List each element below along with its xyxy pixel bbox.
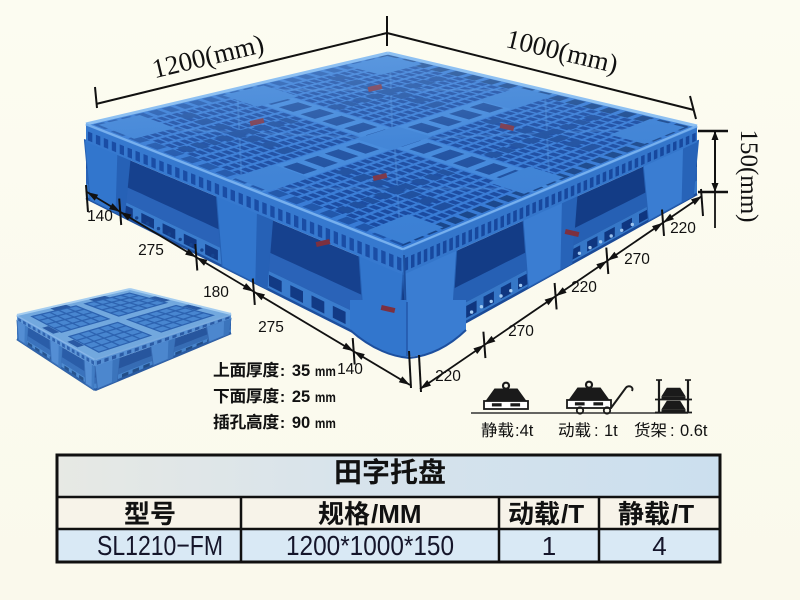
svg-text:220: 220 [670,220,696,237]
svg-text:/T: /T [561,499,584,529]
svg-text:150(mm): 150(mm) [735,129,762,222]
svg-text:275: 275 [258,319,284,336]
svg-text:0.6t: 0.6t [680,422,708,440]
svg-text:1000(mm): 1000(mm) [503,23,621,79]
svg-text:4: 4 [652,531,666,561]
svg-text:/MM: /MM [371,499,422,529]
svg-text:25: 25 [292,388,310,406]
svg-text:275: 275 [138,242,164,259]
svg-text:1: 1 [542,531,556,561]
svg-text::: : [280,415,285,432]
svg-text::4t: :4t [515,422,534,440]
svg-text:180: 180 [203,284,229,301]
svg-text:270: 270 [508,323,534,340]
svg-text:35: 35 [292,362,310,380]
svg-text:mm: mm [315,389,336,405]
svg-text:220: 220 [435,368,461,385]
svg-text::: : [670,422,675,440]
svg-text:1t: 1t [604,422,618,440]
svg-text::: : [280,363,285,380]
svg-text:140: 140 [87,208,113,225]
svg-text:1200*1000*150: 1200*1000*150 [286,530,454,561]
svg-text::: : [280,389,285,406]
svg-text:mm: mm [315,415,336,431]
svg-text:90: 90 [292,414,310,432]
svg-text:/T: /T [671,499,694,529]
svg-text:270: 270 [624,251,650,268]
svg-text:220: 220 [571,279,597,296]
svg-text:140: 140 [337,361,363,378]
svg-text:mm: mm [315,363,336,379]
svg-text::: : [594,422,599,440]
svg-text:SL1210−FM: SL1210−FM [97,530,223,561]
